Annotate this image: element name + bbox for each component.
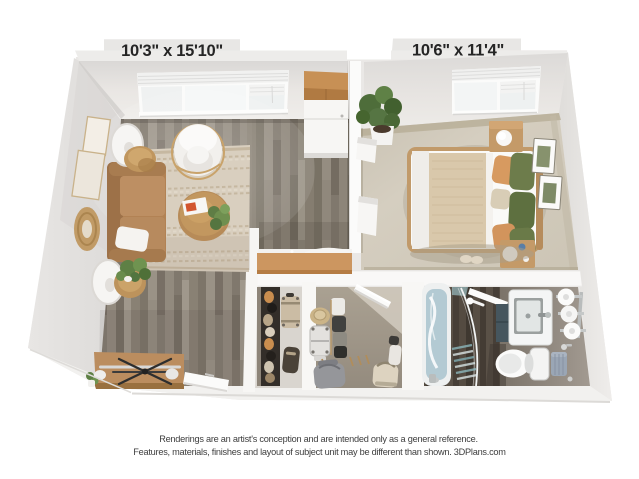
svg-text:Renderings are an artist's con: Renderings are an artist's conception an… xyxy=(159,434,478,444)
svg-text:Features, materials, finishes: Features, materials, finishes and layout… xyxy=(133,447,506,457)
svg-text:10'3" x 15'10": 10'3" x 15'10" xyxy=(121,42,223,60)
